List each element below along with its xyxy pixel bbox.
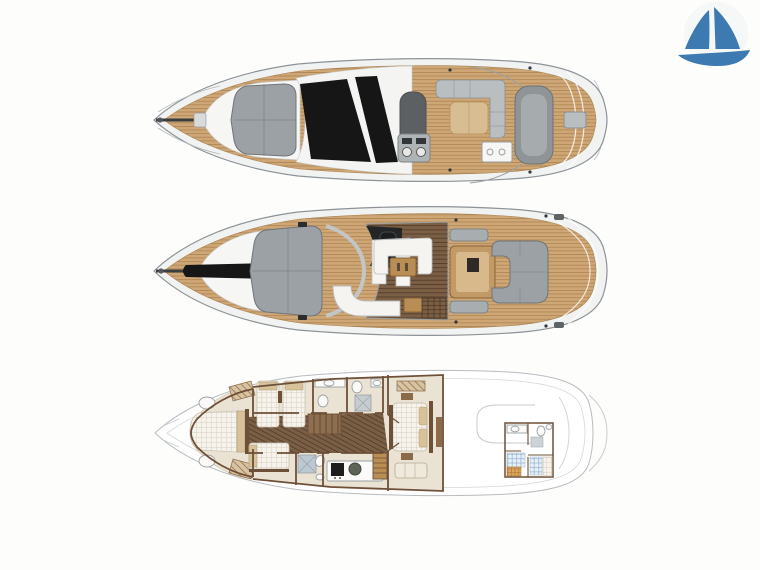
crew-mat-tan xyxy=(507,467,521,476)
crew-sink xyxy=(511,426,519,432)
galley-ladder xyxy=(373,453,387,479)
sink xyxy=(373,380,381,385)
cockpit-bar xyxy=(450,246,495,298)
dresser xyxy=(397,381,425,391)
bow-sunpad xyxy=(250,222,322,320)
galley-sink xyxy=(349,463,361,475)
wet-bar xyxy=(482,142,512,162)
cooktop xyxy=(331,463,344,476)
crew-shower-tiles xyxy=(531,437,543,447)
helm-console xyxy=(398,134,430,162)
crew-toilet xyxy=(537,426,545,436)
dining-table xyxy=(390,258,416,276)
toilet xyxy=(318,395,328,407)
engine-hatch xyxy=(564,112,586,128)
crew-basin xyxy=(546,425,552,430)
vip-pillows xyxy=(237,411,245,452)
crew-floor-blue xyxy=(507,453,525,467)
bow-sunpad xyxy=(231,84,296,156)
yacht-deck-plan-sheet xyxy=(0,0,760,570)
side-bench-starboard xyxy=(450,301,488,313)
lower-deck-plan xyxy=(151,357,613,509)
coffee-table xyxy=(404,298,424,312)
crew-floor-blue xyxy=(530,457,542,475)
toilet xyxy=(352,381,362,393)
side-bench-port xyxy=(450,229,488,241)
sailboat-logo-icon xyxy=(672,2,760,72)
main-deck-plan xyxy=(150,200,614,342)
vanity-seat xyxy=(199,397,215,409)
tv-cabinet xyxy=(436,417,442,447)
corridor-stairs xyxy=(308,414,341,434)
crew-bunk xyxy=(543,457,552,476)
sink xyxy=(324,380,334,386)
flybridge-deck-plan xyxy=(150,54,614,186)
guest-cabin xyxy=(249,443,289,472)
companionway-steps xyxy=(422,298,446,318)
master-sofa xyxy=(395,463,427,478)
